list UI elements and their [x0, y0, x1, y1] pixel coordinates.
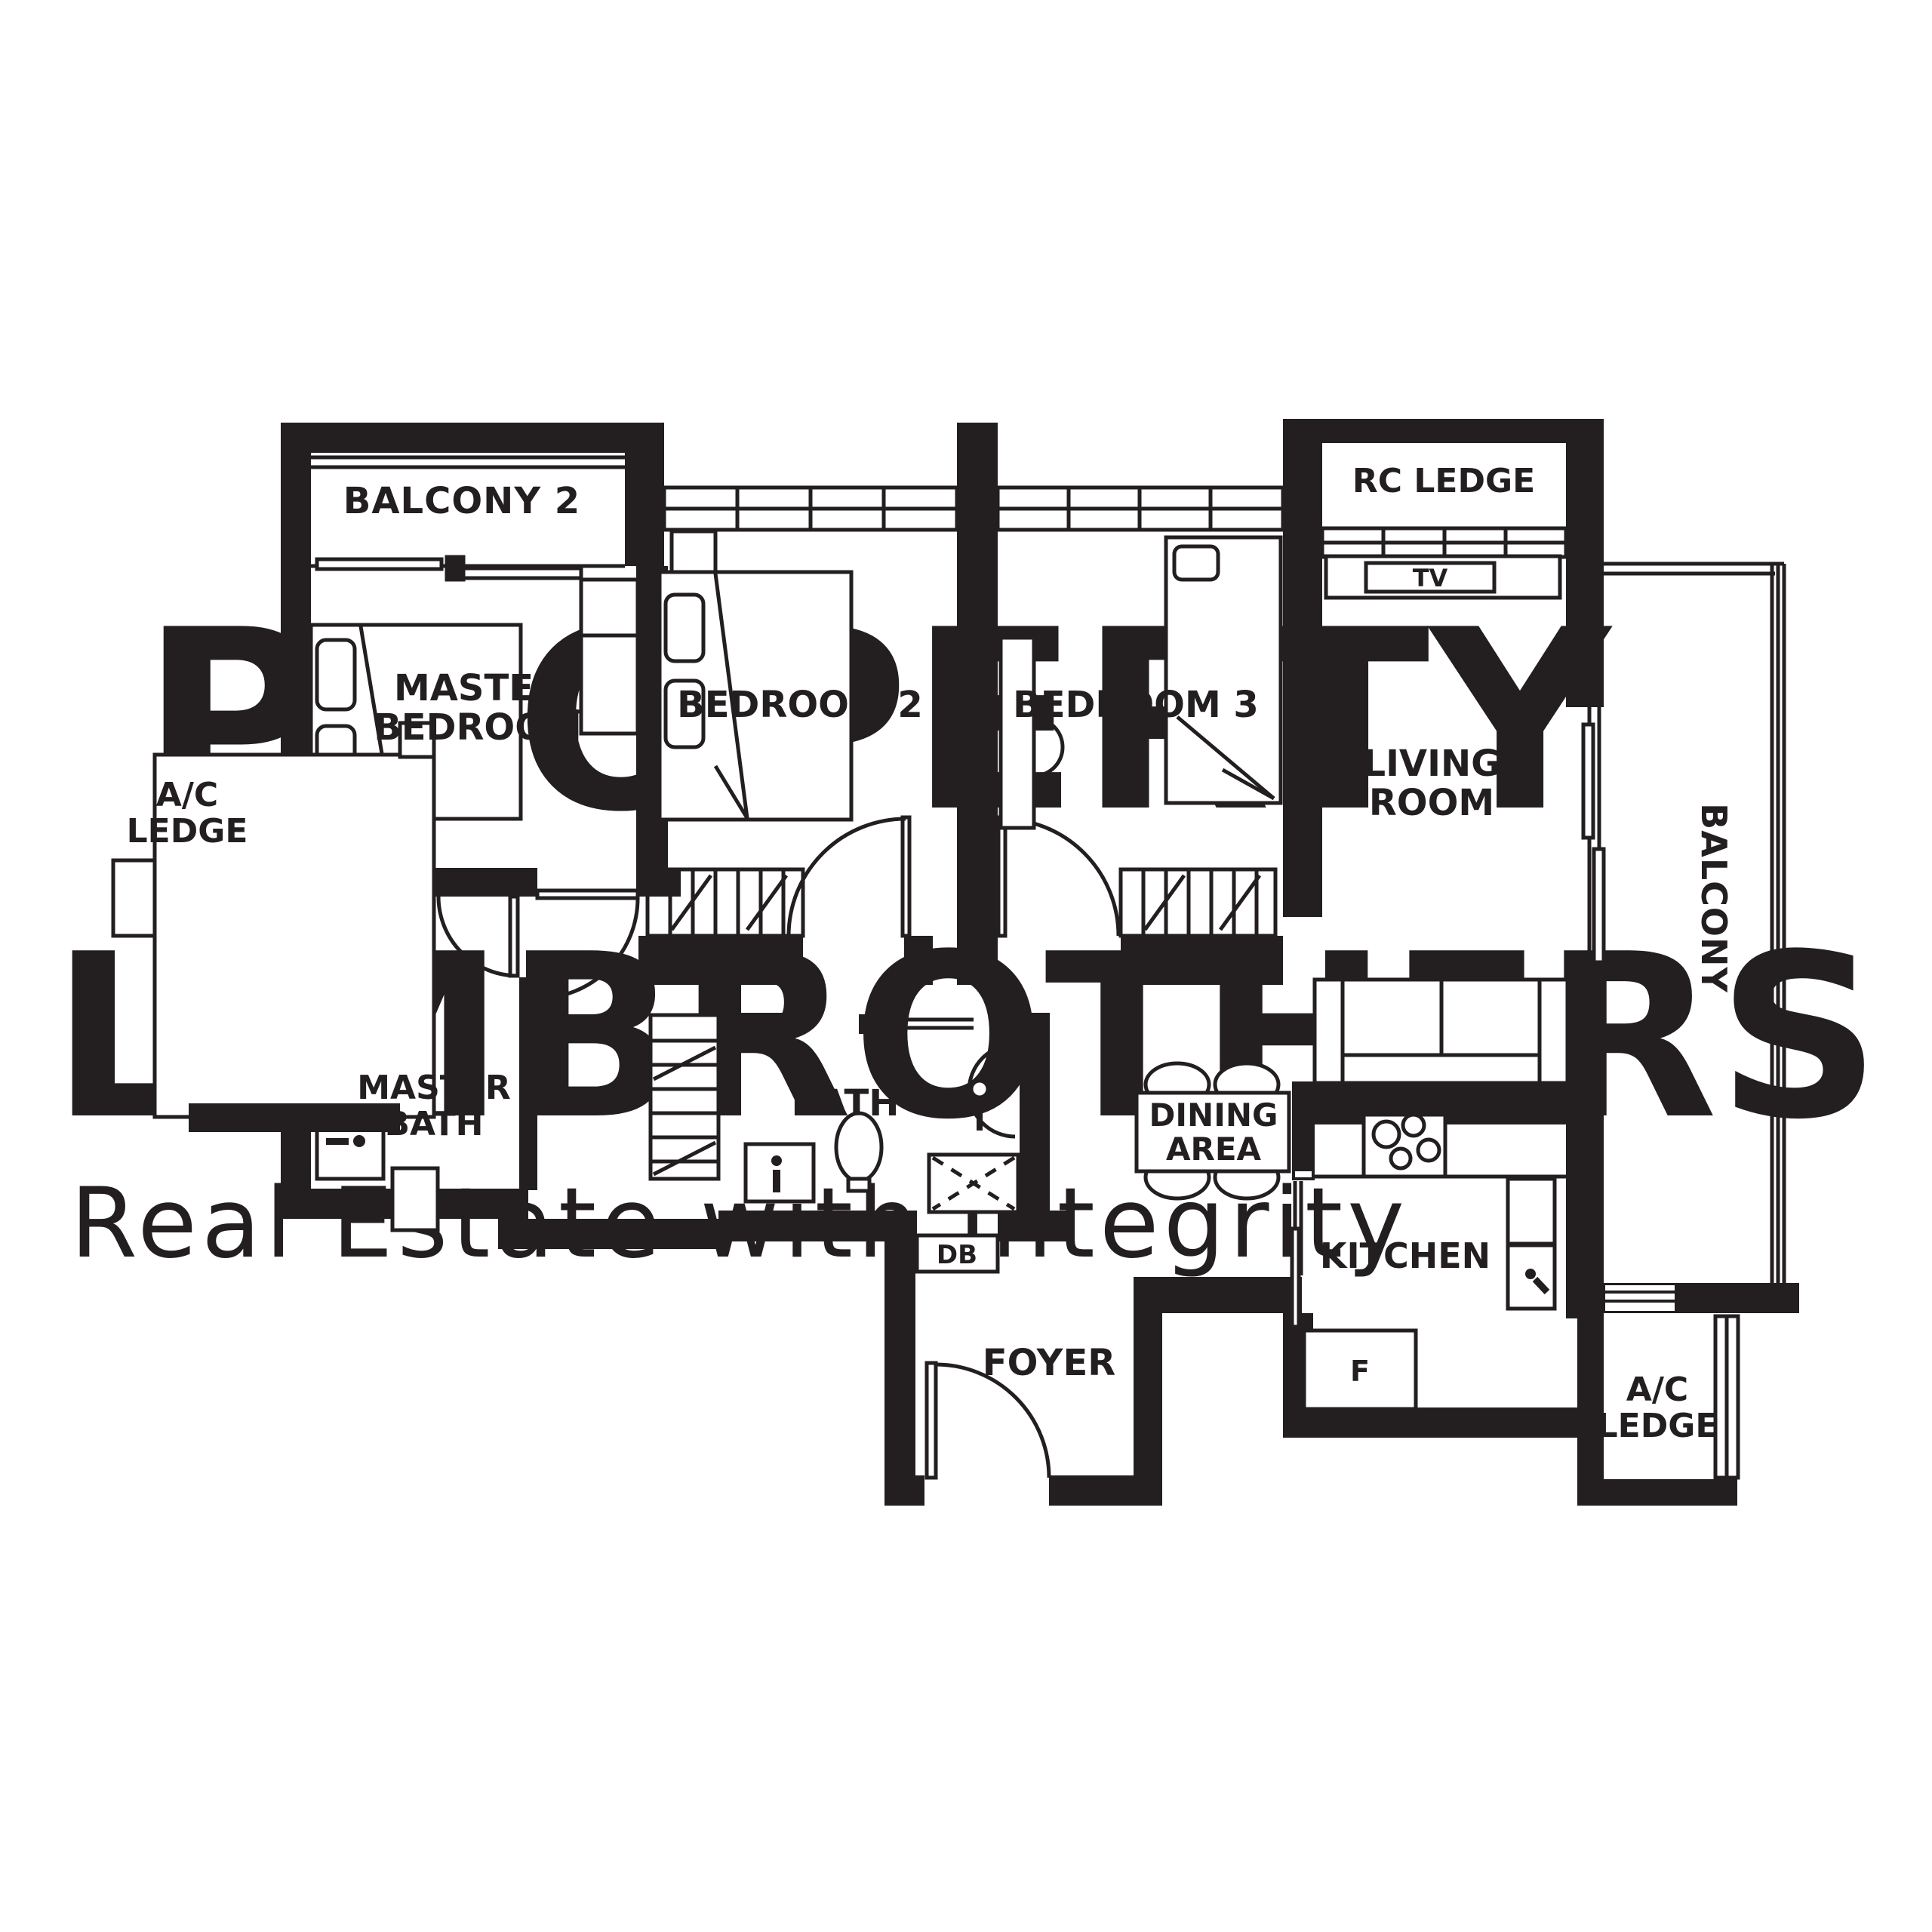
bedroom2-pillow [666, 595, 703, 661]
label-foyer: FOYER [983, 1342, 1115, 1384]
kitchen-sliding-door-icon [1292, 1181, 1301, 1327]
label-balcony: BALCONY [1694, 803, 1734, 993]
label-bedroom3: BEDROOM 3 [1013, 684, 1259, 726]
wall-bath-bottom [718, 1211, 917, 1241]
wall-foyer-top [1134, 1277, 1302, 1313]
wall-br3-living [1283, 423, 1322, 917]
label-ac-ledge-left-1: A/C [156, 776, 218, 814]
label-rc-ledge: RC LEDGE [1352, 462, 1535, 500]
ac-ledge-right-structure [1715, 1316, 1738, 1478]
floor-plan-svg: PROPERTY LIMBROTHERS Real Estate with In… [0, 0, 1932, 1932]
label-ac-ledge-left-2: LEDGE [127, 812, 248, 851]
label-master-bedroom-2: BEDROOM [374, 706, 582, 749]
sofa-icon [1315, 980, 1567, 1083]
wall-right-of-db [998, 1211, 1073, 1241]
label-living-1: LIVING [1362, 743, 1500, 785]
label-tv: TV [1413, 564, 1448, 592]
wall-acledge-right-bottom [1577, 1479, 1737, 1506]
label-master-bath-2: BATH [384, 1105, 483, 1143]
wall-mbath-right [519, 977, 537, 1190]
label-living-2: ROOM [1369, 782, 1494, 824]
wall-rcledge-top [1283, 419, 1604, 443]
foyer-door-opening [924, 1475, 1049, 1506]
wall-br3-door-stub [1121, 936, 1149, 985]
wall-mb-door-block [638, 868, 681, 897]
label-kitchen: KITCHEN [1320, 1235, 1491, 1276]
floor-plan-page: PROPERTY LIMBROTHERS Real Estate with In… [0, 0, 1932, 1932]
wall-br3-bottom [1149, 936, 1283, 985]
wall-rcledge-right [1566, 419, 1604, 707]
label-balcony2: BALCONY 2 [343, 480, 580, 522]
label-master-bath-1: MASTER [357, 1069, 510, 1107]
wall-corridor-bottom [498, 1219, 724, 1249]
kitchen-sink-icon [1525, 1269, 1536, 1279]
wall-br2-bottom [638, 936, 803, 985]
label-bedroom2: BEDROOM 2 [677, 684, 923, 726]
label-dining-1: DINING [1149, 1097, 1278, 1134]
label-ac-ledge-right-2: LEDGE [1597, 1407, 1718, 1445]
label-fridge: F [1350, 1355, 1370, 1388]
wall-balcony2-top [281, 423, 664, 453]
bedroom3-desk [1001, 638, 1034, 828]
hall-cabinet-icon [651, 1015, 718, 1179]
wall-kitchen-post [1292, 1081, 1315, 1179]
label-dining-2: AREA [1166, 1131, 1262, 1168]
balcony-bottom-window [1605, 1285, 1675, 1311]
wall-kitchen-bottom [1283, 1407, 1604, 1438]
wall-br2-door-stub [904, 936, 933, 985]
label-db: DB [937, 1240, 977, 1270]
label-master-bedroom-1: MASTER [394, 667, 561, 709]
wall-bath-right [1020, 1013, 1050, 1241]
wall-br2-br3-divider [957, 423, 998, 985]
master-dresser [581, 580, 638, 635]
bedroom3-pillow [1174, 546, 1218, 580]
wall-balcony2-right [625, 423, 664, 566]
master-bed-pillow [317, 640, 355, 709]
label-bath: BATH [792, 1082, 900, 1124]
wall-foyer-left [884, 1241, 915, 1506]
kitchen-counter-right [1508, 1179, 1555, 1244]
kitchen-post-cap [1294, 1170, 1313, 1179]
label-ac-ledge-right-1: A/C [1626, 1371, 1688, 1409]
